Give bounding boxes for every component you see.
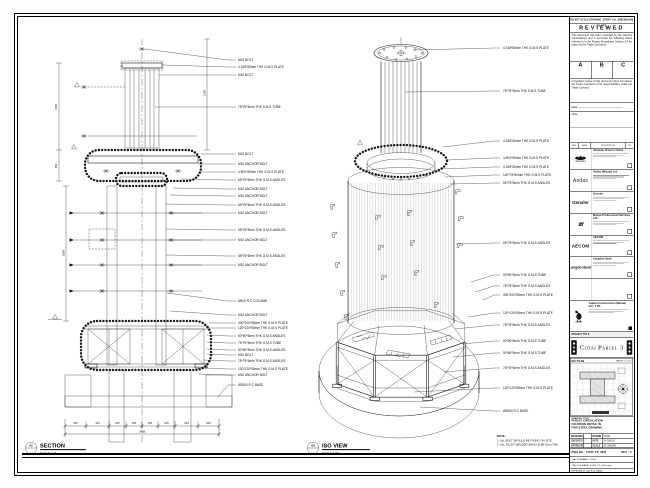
reviewed-stamp-title: REVIEWED: [570, 24, 634, 34]
project-title-row: Cotai Parcel 3: [570, 338, 634, 359]
date-fill-line: [580, 104, 623, 109]
svg-text:225: 225: [115, 421, 120, 425]
consultant-name: Venetian Orient Limited: [593, 150, 632, 153]
callout-label: M10 ANCHOR BOLT: [238, 238, 268, 242]
consultant-name: Langdon Seah: [593, 258, 632, 261]
callout-label: M10 ANCHOR BOLT: [238, 194, 268, 198]
section-bottom-dimensions: 300 444 225 250 250 225 444 300 2438: [64, 419, 221, 437]
svg-text:250: 250: [148, 421, 153, 425]
callout-label: 75*75*5mm THK G.M.S ANGLES: [503, 284, 550, 288]
callout-label: 120*120*50mm THK G.M.S PLATE: [238, 367, 288, 371]
callout-label: 50*50*5mm THK G.M.S TUBE: [503, 273, 546, 277]
iso-octagon-frame: [333, 311, 469, 401]
svg-text:1800: 1800: [62, 250, 66, 256]
address-text: [593, 153, 632, 157]
svg-text:300: 300: [206, 421, 211, 425]
consultant-row-empty: [570, 279, 634, 301]
aedas-logo-icon: Aedas: [570, 170, 592, 191]
callout-label: 400*200*50mm THK G.M.S PLATE: [238, 321, 288, 325]
review-checkbox: [628, 229, 633, 234]
approved-value: -: [584, 443, 592, 448]
section-base-frame-cloud: [81, 321, 211, 370]
by-col: BY: [626, 143, 634, 148]
callout-label: 65*75*5mm THK G.M.S ANGLES: [503, 181, 550, 185]
status-option-a: A: [570, 62, 591, 79]
contractor-name: Yadea Construction (Macau) CO., LTD.: [589, 302, 633, 308]
title-block: DO NOT SCALE DRAWING. VERIFY ALL DIMENSI…: [569, 17, 634, 472]
callout-label: 65*75*5mm THK G.M.S ANGLES: [238, 254, 285, 258]
consultant-name: AECOM: [593, 236, 632, 239]
section-anchor-bolts: [48, 211, 202, 319]
project-title: Cotai Parcel 3: [580, 344, 624, 352]
address-text: [593, 175, 632, 179]
status-option-b: B: [591, 62, 612, 79]
note-area: Note :: [570, 112, 634, 143]
callout-label: 75*75*5mm THK S.M.S TUBE: [503, 89, 546, 93]
note-label: Note :: [572, 113, 579, 116]
key-plan-label: KEY PLAN: [572, 360, 585, 363]
aecom-logo-icon: AECOM: [570, 235, 592, 256]
svg-text:250: 250: [132, 421, 137, 425]
title-strip-rule-thin: [22, 457, 573, 458]
iso-tube-bundle: [381, 62, 421, 154]
callout-label: 75*75*5mm THK G.M.S ANGLES: [503, 323, 550, 327]
callout-label: M10 BOLT: [238, 58, 253, 62]
cad-file-rows: CAD FILENAME : 51535 CAD FILE NAME : 515…: [570, 457, 634, 472]
svg-text:2438: 2438: [139, 430, 145, 434]
section-revision-cloud-plate: [72, 144, 202, 186]
iso-cylinder: [348, 168, 454, 335]
callout-label: 4 345*50mm THK G.M.S PLATE: [503, 165, 549, 169]
address-text: [593, 197, 632, 201]
callout-label: M10 ANCHOR BOLT: [238, 373, 268, 377]
consultant-row-aedas: Aedas Aedas (Macau) Ltd.: [570, 170, 634, 192]
description-col: DESCRIPTION: [591, 143, 626, 148]
address-text: [593, 222, 632, 226]
review-checkbox: [628, 251, 633, 256]
contractor-stamp-square: [629, 327, 633, 331]
contractor-block: Yadea Construction (Macau) CO., LTD.: [570, 301, 634, 333]
svg-text:444: 444: [95, 421, 100, 425]
callout-label: 75*75*5mm THK G.M.S ANGLES: [238, 359, 285, 363]
dwg-no-label: DWG NO :: [572, 449, 585, 457]
section-top-column: [75, 47, 198, 148]
svg-text:NOTE:: NOTE:: [497, 434, 506, 438]
callout-label: Ø2500 R.C BASE: [238, 383, 263, 387]
svg-text:450: 450: [54, 163, 58, 168]
date-col: DATE: [579, 143, 592, 148]
langdonseah-logo-icon: LangdonSeah: [570, 257, 592, 278]
scale-label: SCALE: [592, 443, 603, 448]
consultant-row-gensler: Gensler Gensler: [570, 192, 634, 214]
svg-text:1500: 1500: [54, 104, 58, 110]
svg-text:225: 225: [164, 421, 169, 425]
empty-logo-cell: [570, 279, 592, 300]
svg-text:1500: 1500: [203, 90, 207, 96]
date-label: Date :: [572, 106, 579, 109]
callout-label: 75*75*5mm THK G.M.S ANGLES: [503, 366, 550, 370]
callout-label: Ø500 R.C COLUMN: [238, 299, 268, 303]
address-text: [589, 309, 633, 313]
drawing-title-line: FOR STEEL DRAWING: [572, 427, 633, 431]
iso-notes: NOTE: 1. ALL BOLT SHOULD BE FIXING ON SI…: [497, 434, 559, 446]
drawing-title-block: DRAWING TITLE : PUBLIC CIRCULATION FOUNT…: [570, 417, 634, 435]
svg-text:444: 444: [184, 421, 189, 425]
consultant-row-venetian: Venetian Venetian Orient Limited: [570, 149, 634, 171]
svg-text:2. ALL FILLET WELDED SHOULD BE: 2. ALL FILLET WELDED SHOULD BE 6mm THK.: [497, 442, 559, 446]
callout-label: 65*75*5mm THK G.M.S ANGLES: [238, 178, 285, 182]
dwg-no-value: 51535_PS_0000: [586, 449, 606, 457]
consultant-name: Macau Professional Services Ltd.: [593, 215, 632, 221]
key-plan-sublabel: PARCEL 1, LOT 2: [616, 360, 631, 363]
scale-value: AS SHOWN: [603, 443, 634, 448]
consultant-row-langdonseah: LangdonSeah Langdon Seah: [570, 257, 634, 279]
signoff-table: DESIGNED - DRAWN CHAD CHECKED - DATE 14-…: [570, 434, 634, 449]
address-text: [593, 262, 632, 266]
callout-label: 50*50*5mm THK G.M.S TUBE: [503, 351, 546, 355]
callout-label: 4 800*50mm THK G.M.S PLATE: [238, 170, 284, 174]
review-checkbox: [628, 185, 633, 190]
drawing-sheet: 1500 450 1800 1500: [14, 13, 638, 476]
callout-label: M10 BOLT: [238, 152, 253, 156]
review-status-options: A B C: [570, 62, 634, 80]
consultant-name: Gensler: [593, 193, 632, 196]
reviewed-paragraph-1: This document has been reviewed by the r…: [570, 33, 634, 62]
callout-label: M10 ANCHOR BOLT: [238, 187, 268, 191]
cad-row: REFERENCE CAD FILE NAME :: [570, 469, 634, 473]
title-strip-rule: [22, 453, 573, 455]
review-checkbox: [628, 272, 633, 277]
callout-label: M10 ANCHOR BOLT: [238, 162, 268, 166]
callout-label: M10 BOLT: [238, 73, 253, 77]
consultant-name: Aedas (Macau) Ltd.: [593, 171, 632, 174]
venetian-logo-icon: Venetian: [570, 149, 592, 170]
section-view-drawing: 1500 450 1800 1500: [22, 23, 304, 455]
iso-top-plate: [374, 37, 428, 62]
address-text: [593, 240, 632, 244]
approved-label: APPROVED: [570, 443, 584, 448]
callout-label: 120*75*50mm THK G.M.S PLATE: [503, 173, 551, 177]
svg-text:ISO VIEW: ISO VIEW: [322, 444, 348, 450]
svg-text:SECTION: SECTION: [40, 444, 65, 450]
callout-label: 50*50*5mm THK G.M.S ANGLES: [238, 348, 285, 352]
callout-label: 4 345*50mm THK G.M.S PLATE: [238, 65, 284, 69]
callout-label: 4 800*50mm THK G.M.S PLATE: [503, 156, 549, 160]
svg-text:03: 03: [311, 444, 315, 448]
consultant-row-aecom: AECOM AECOM: [570, 235, 634, 257]
review-checkbox: [628, 164, 633, 169]
callout-label: 75*75*5mm THK S.M.S TUBE: [238, 105, 281, 109]
callout-label: M10 ANCHOR BOLT: [238, 313, 268, 317]
gensler-logo-icon: Gensler: [570, 192, 592, 213]
consultant-row-meinhardt: ttt Macau Professional Services Ltd.: [570, 214, 634, 236]
meinhardt-logo-icon: ttt: [570, 214, 592, 235]
callout-label: 400*200*50mm THK G.M.S PLATE: [503, 293, 553, 297]
callout-label: 65*75*5mm THK G.M.S ANGLES: [238, 228, 285, 232]
callout-label: 4 345*50mm THK G.M.S PLATE: [503, 46, 549, 50]
drawing-number-row: DWG NO : 51535_PS_0000 REV : C: [570, 449, 634, 458]
consultant-rows: Venetian Venetian Orient Limited Aedas A…: [570, 149, 634, 301]
iso-concrete-base: [319, 326, 479, 438]
rev-label: REV :: [621, 449, 628, 457]
svg-text:02: 02: [29, 444, 33, 448]
ornament-icon: [571, 340, 577, 355]
callout-label: 50*50*5mm THK G.M.S TUBE: [503, 339, 546, 343]
review-date-row: Date :: [570, 103, 634, 113]
callout-label: 120*120*50mm THK G.M.S PLATE: [503, 386, 553, 390]
review-checkbox: [628, 294, 633, 299]
section-callouts: M10 BOLT 4 345*50mm THK G.M.S PLATE M10 …: [145, 49, 288, 397]
callout-label: 65*75*5mm THK G.M.S ANGLES: [238, 203, 285, 207]
callout-label: 50*50*5mm THK G.M.S ANGLES: [238, 334, 285, 338]
callout-label: 4 345*50mm THK G.M.S PLATE: [503, 139, 549, 143]
callout-label: 65*75*5mm THK G.M.S ANGLES: [503, 241, 550, 245]
callout-label: 120*120*50mm THK G.M.S PLATE: [238, 326, 288, 330]
reviewed-paragraph-2: Consultant review of this document does …: [570, 79, 634, 103]
key-plan: KEY PLAN PARCEL 1, LOT 2: [570, 358, 634, 417]
callout-label: M10 BOLT: [238, 353, 253, 357]
rev-col: REV: [570, 143, 579, 148]
rev-value: C: [630, 449, 632, 457]
callout-label: M10 ANCHOR BOLT: [238, 263, 268, 267]
callout-label: M10 ANCHOR BOLT: [238, 211, 268, 215]
callout-label: 120*120*50mm THK G.M.S PLATE: [503, 311, 553, 315]
ornament-icon: [626, 340, 632, 355]
iso-view-drawing: 4 345*50mm THK G.M.S PLATE 75*75*5mm THK…: [304, 23, 575, 455]
sheet-inner-border: 1500 450 1800 1500: [17, 16, 635, 473]
callout-label: 75*75*5mm THK G.M.S TUBE: [238, 341, 281, 345]
review-checkbox: [628, 207, 633, 212]
callout-label: Ø2500 R.C BASE: [503, 409, 528, 413]
section-foundation: [65, 370, 232, 442]
status-option-c: C: [613, 62, 634, 79]
svg-text:300: 300: [73, 421, 78, 425]
contractor-logo-icon: [570, 301, 587, 332]
